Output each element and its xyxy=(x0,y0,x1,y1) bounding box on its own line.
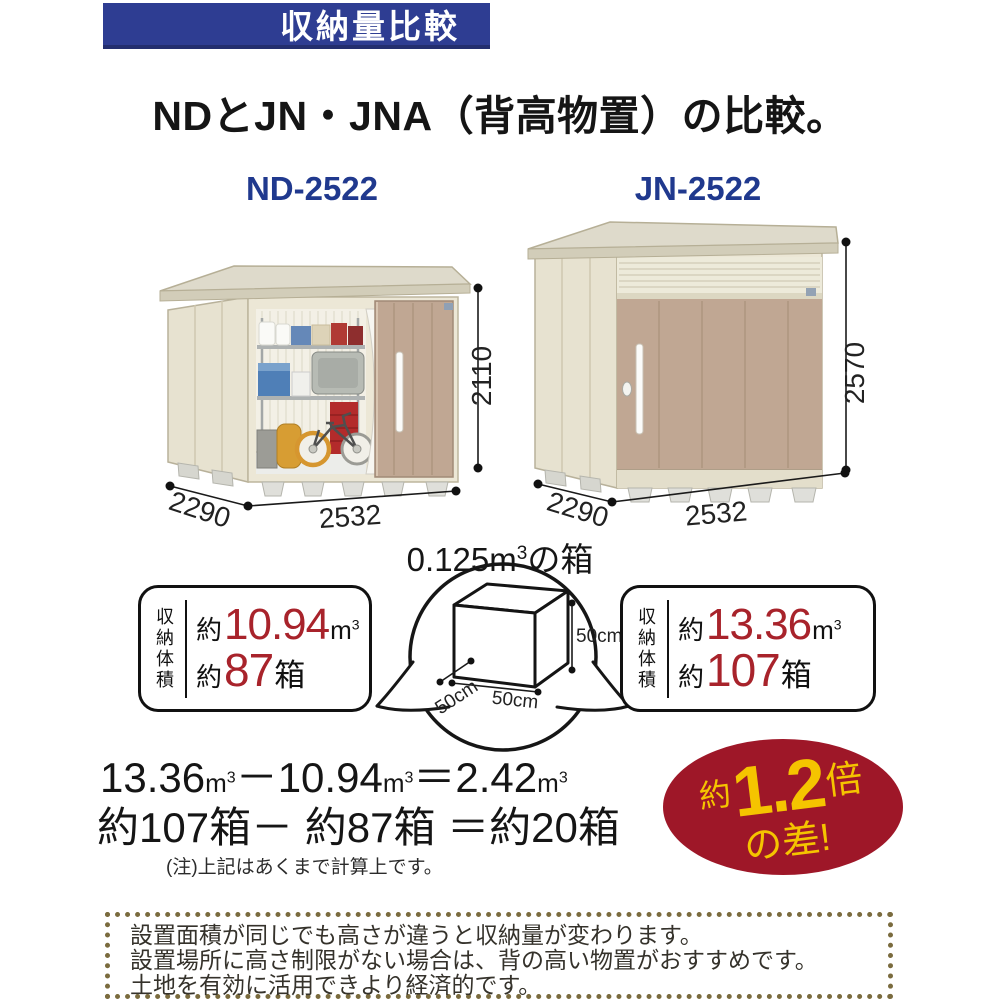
capacity-volume-row: 約13.36m3 xyxy=(678,603,842,648)
reference-cube xyxy=(454,584,568,687)
shed-right-illustration xyxy=(528,222,838,502)
shed-right-shutter xyxy=(617,257,822,299)
shed-left-side-wall xyxy=(168,297,248,482)
shed-left-logo-tag xyxy=(444,303,453,310)
divider xyxy=(185,600,187,698)
divider xyxy=(667,600,669,698)
shed-right-side-wall xyxy=(535,249,617,488)
footer-line-1: 設置面積が同じでも高さが違うと収納量が変わります。 xyxy=(130,923,888,948)
capacity-box-nd: 収納体積 約10.94m3 約87箱 xyxy=(138,585,372,712)
footer-line-2: 設置場所に高さ制限がない場合は、背の高い物置がおすすめです。 xyxy=(130,948,888,973)
shed-right-door xyxy=(617,299,822,470)
capacity-volume-row: 約10.94m3 xyxy=(196,603,360,648)
capacity-boxes-row: 約87箱 xyxy=(196,647,360,694)
capacity-box-jn: 収納体積 約13.36m3 約107箱 xyxy=(620,585,876,712)
reference-bubble xyxy=(377,564,629,750)
calc-note: (注)上記はあくまで計算上です。 xyxy=(166,852,443,879)
capacity-boxes-row: 約107箱 xyxy=(678,647,842,694)
footer-note-box: 設置面積が同じでも高さが違うと収納量が変わります。 設置場所に高さ制限がない場合… xyxy=(105,912,893,999)
shed-left-interior xyxy=(256,309,372,474)
footer-line-3: 土地を有効に活用できより経済的です。 xyxy=(130,973,888,998)
shed-right-logo-tag xyxy=(806,288,816,296)
shed-right-door-knob xyxy=(623,382,632,396)
shed-right-door-handle xyxy=(636,344,643,434)
difference-badge: 約1.2倍 の差! xyxy=(663,739,903,875)
capacity-vertical-label: 収納体積 xyxy=(151,607,177,691)
capacity-vertical-label: 収納体積 xyxy=(633,607,659,691)
shed-left-illustration xyxy=(160,266,470,496)
reference-box-title: 0.125m3の箱 xyxy=(350,533,650,581)
dim-nd-height: 2110 xyxy=(466,328,496,424)
calc-boxes-line: 約107箱－ 約87箱 ＝約20箱 xyxy=(97,794,620,855)
shed-left-door-handle xyxy=(396,352,403,432)
shed-left-door xyxy=(375,301,453,477)
dim-jn-height: 2570 xyxy=(839,325,869,421)
